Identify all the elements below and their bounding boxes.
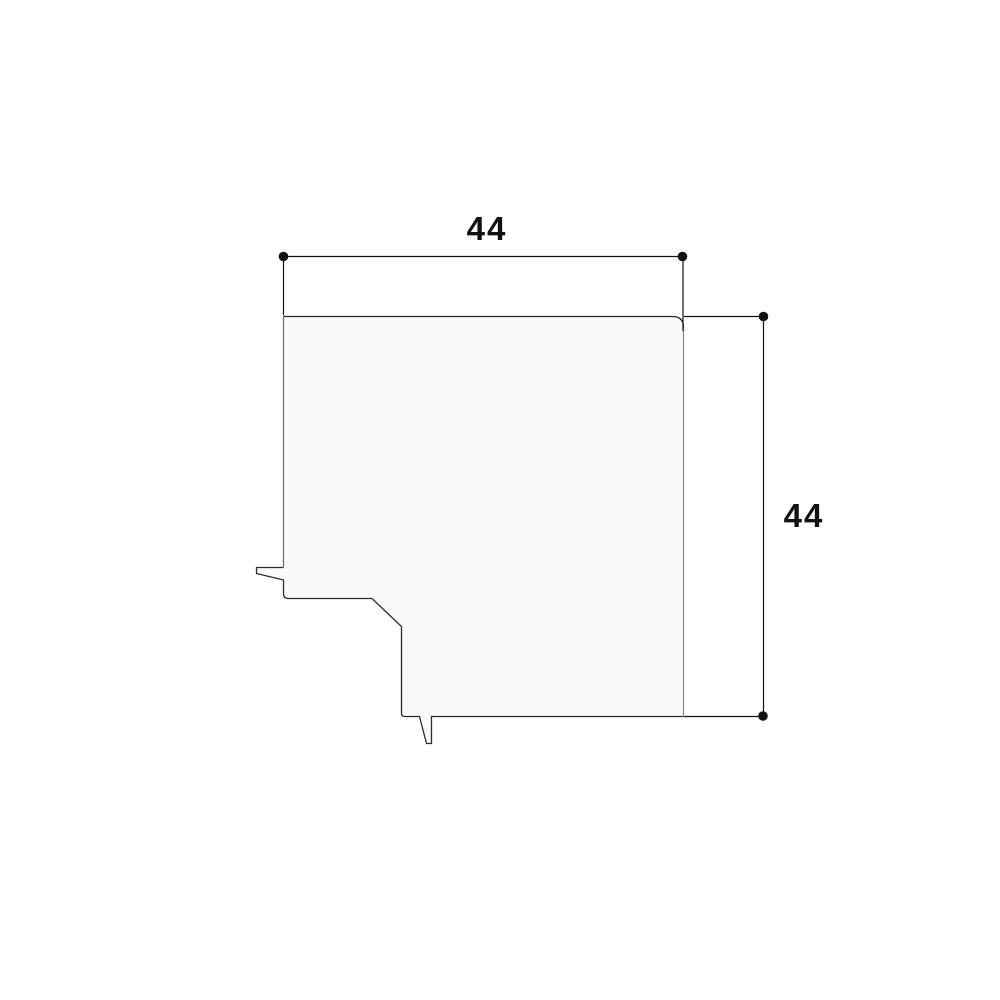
svg-text:44: 44 <box>467 210 508 247</box>
svg-text:44: 44 <box>784 497 825 534</box>
